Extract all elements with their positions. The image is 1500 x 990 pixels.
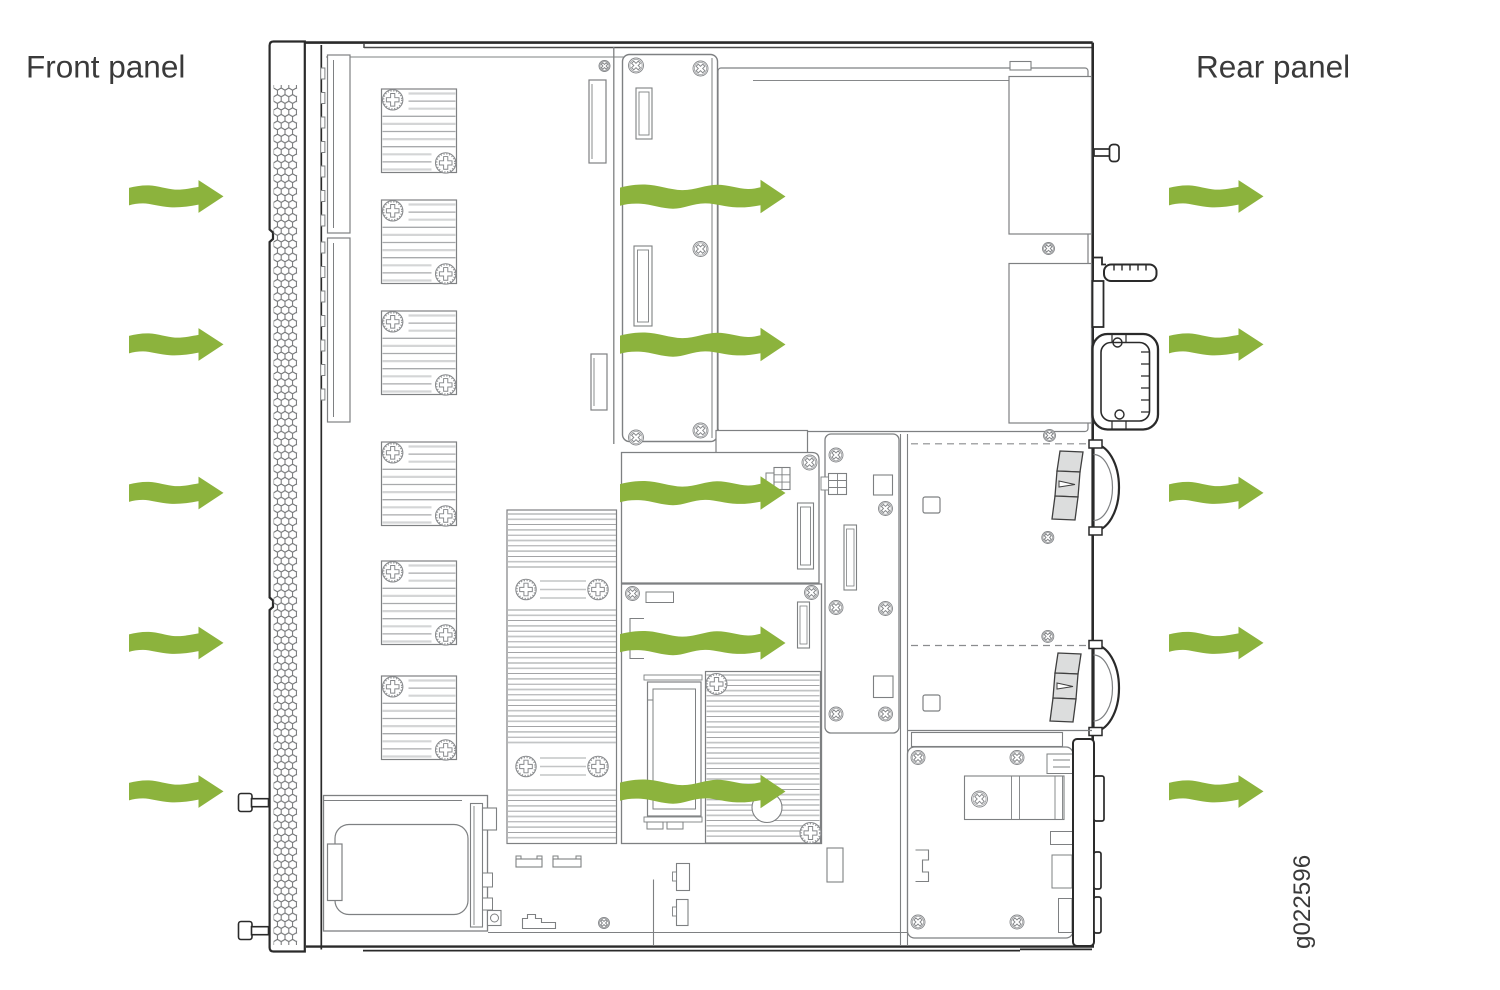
svg-text:Front panel: Front panel [26, 49, 185, 85]
svg-text:g022596: g022596 [1289, 855, 1316, 949]
svg-text:Rear panel: Rear panel [1196, 49, 1350, 85]
